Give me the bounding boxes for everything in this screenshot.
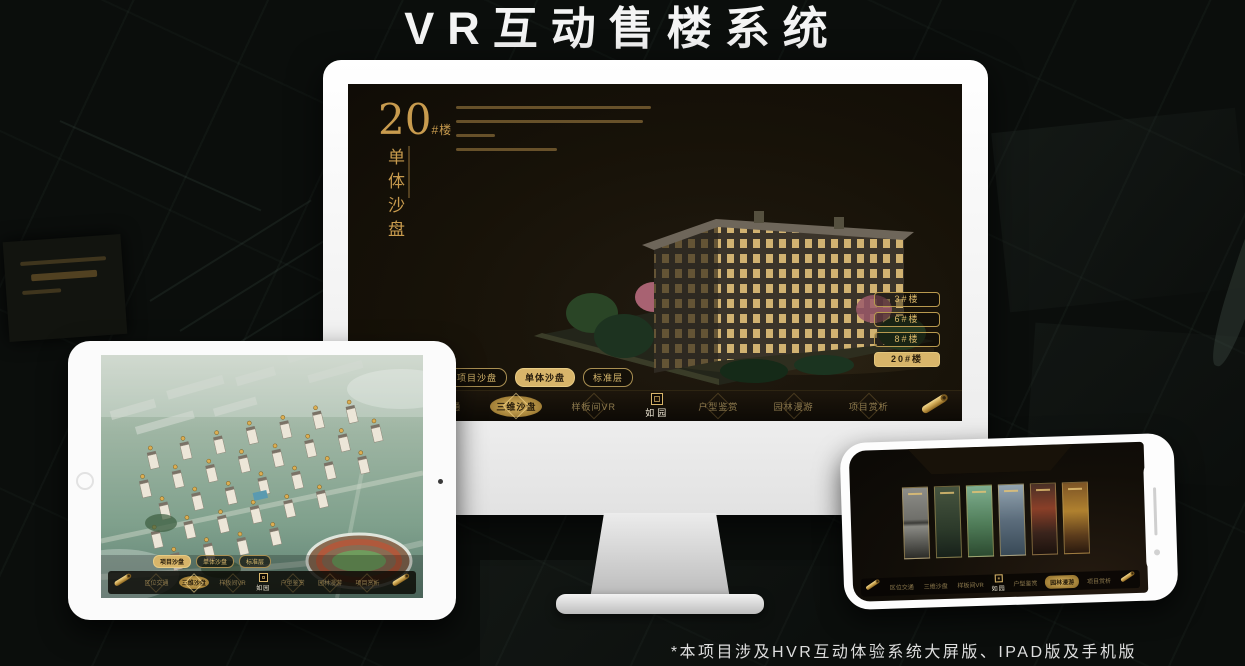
award-plaque [3, 234, 128, 342]
speaker-icon [1153, 487, 1157, 535]
floor-button-3[interactable]: 3#楼 [874, 292, 940, 307]
floor-button-6[interactable]: 6#楼 [874, 312, 940, 327]
building-subtitle: 单体沙盘 [382, 148, 407, 244]
nav-item-showroom-vr[interactable]: 样板间VR [566, 396, 623, 417]
monitor-stand [590, 513, 730, 599]
floor-button-20[interactable]: 20#楼 [874, 352, 940, 367]
nav-item-project-gallery[interactable]: 项目赏析 [1085, 574, 1113, 586]
subtab-project-sandbox[interactable]: 项目沙盘 [153, 555, 191, 568]
nav-item-project-gallery[interactable]: 项目赏析 [843, 396, 895, 417]
subtab-standard-floor[interactable]: 标准层 [239, 555, 271, 568]
seal-icon [994, 574, 1002, 582]
subtab-standard-floor[interactable]: 标准层 [583, 368, 633, 387]
subtab-single-sandbox[interactable]: 单体沙盘 [515, 368, 575, 387]
phone-notch [1143, 460, 1169, 574]
building-number: 20 [378, 95, 431, 144]
scroll-icon[interactable] [918, 392, 952, 421]
phone-nav-bar: 区位交通 三维沙盘 样板间VR 如园 户型鉴赏 园林漫游 项目赏析 [861, 570, 1140, 597]
nav-item-location-traffic[interactable]: 区位交通 [141, 576, 171, 589]
nav-item-project-gallery[interactable]: 项目赏析 [352, 576, 382, 589]
nav-item-floorplans[interactable]: 户型鉴赏 [692, 396, 744, 417]
ruyuan-logo[interactable]: 如园 [256, 573, 270, 592]
building-render-3d [504, 131, 934, 393]
text-line [456, 106, 651, 109]
subtab-single-sandbox[interactable]: 单体沙盘 [196, 555, 234, 568]
scene-card[interactable] [1030, 483, 1058, 556]
vertical-caption-decoration [408, 146, 410, 198]
nav-item-3d-sandbox[interactable]: 三维沙盘 [490, 396, 542, 417]
scene-card[interactable] [966, 485, 994, 558]
nav-item-floorplans[interactable]: 户型鉴赏 [278, 576, 308, 589]
seal-icon [651, 393, 663, 405]
camera-icon [438, 479, 443, 484]
tablet-screen: 项目沙盘 单体沙盘 标准层 区位交通 三维沙盘 样板间VR 如园 户型鉴赏 园林… [101, 355, 423, 598]
scene-card[interactable] [934, 486, 962, 559]
nav-item-location-traffic[interactable]: 区位交通 [888, 580, 916, 592]
ruyuan-logo[interactable]: 如园 [991, 574, 1006, 592]
nav-item-3d-sandbox[interactable]: 三维沙盘 [921, 579, 949, 591]
floor-button-group: 3#楼 6#楼 8#楼 20#楼 [874, 292, 940, 367]
sandbox-subtabs: 项目沙盘 单体沙盘 标准层 [447, 368, 633, 387]
logo-text: 如园 [256, 583, 270, 592]
scroll-icon[interactable] [390, 571, 412, 594]
ruyuan-logo[interactable]: 如园 [645, 393, 669, 419]
page-title: VR互动售楼系统 [0, 0, 1245, 58]
nav-item-garden-tour[interactable]: 园林漫游 [1045, 574, 1079, 588]
scene-card[interactable] [1062, 482, 1090, 555]
logo-text: 如园 [645, 406, 669, 419]
footnote-text: *本项目涉及HVR互动体验系统大屏版、IPAD版及手机版 [671, 638, 1137, 662]
scroll-icon[interactable] [112, 571, 134, 594]
text-line [456, 134, 495, 137]
nav-item-floorplans[interactable]: 户型鉴赏 [1011, 577, 1039, 589]
nav-item-garden-tour[interactable]: 园林漫游 [768, 396, 820, 417]
aerial-photo-thumb [991, 108, 1245, 313]
phone-mockup: 区位交通 三维沙盘 样板间VR 如园 户型鉴赏 园林漫游 项目赏析 [839, 433, 1178, 610]
tablet-nav-bar: 区位交通 三维沙盘 样板间VR 如园 户型鉴赏 园林漫游 项目赏析 [108, 571, 416, 594]
scene-gallery [902, 482, 1090, 560]
scroll-icon[interactable] [1119, 569, 1138, 590]
building-unit: #楼 [431, 123, 452, 137]
monitor-base [556, 594, 764, 614]
tablet-mockup: 项目沙盘 单体沙盘 标准层 区位交通 三维沙盘 样板间VR 如园 户型鉴赏 园林… [68, 341, 456, 620]
scene-card[interactable] [902, 487, 930, 560]
nav-item-showroom-vr[interactable]: 样板间VR [955, 578, 986, 590]
nav-item-showroom-vr[interactable]: 样板间VR [216, 576, 248, 589]
nav-item-garden-tour[interactable]: 园林漫游 [315, 576, 345, 589]
text-line [456, 120, 643, 123]
home-button[interactable] [76, 472, 94, 490]
interior-backdrop [908, 444, 1074, 475]
logo-text: 如园 [992, 583, 1006, 592]
scroll-icon[interactable] [864, 577, 883, 598]
scene-card[interactable] [998, 484, 1026, 557]
phone-screen: 区位交通 三维沙盘 样板间VR 如园 户型鉴赏 园林漫游 项目赏析 [849, 442, 1149, 602]
subtab-project-sandbox[interactable]: 项目沙盘 [447, 368, 507, 387]
camera-icon [1154, 549, 1160, 555]
seal-icon [259, 573, 268, 582]
tablet-sandbox-subtabs: 项目沙盘 单体沙盘 标准层 [153, 555, 271, 568]
nav-item-3d-sandbox[interactable]: 三维沙盘 [179, 576, 209, 589]
floor-button-8[interactable]: 8#楼 [874, 332, 940, 347]
